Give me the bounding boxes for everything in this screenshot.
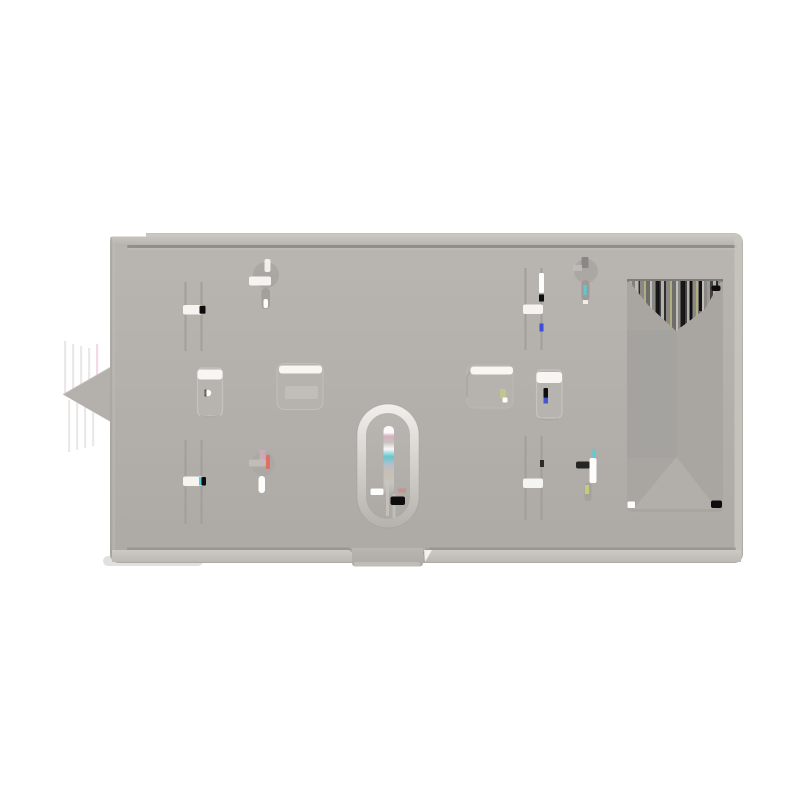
artifact-stripe (68, 400, 70, 452)
mounting-plate-photo (0, 0, 800, 800)
artifact-mark-cyan (199, 477, 201, 486)
bottom-center-tab-lip (354, 562, 420, 567)
artifact-mark-white (503, 398, 508, 403)
artifact-mark-white (371, 489, 384, 496)
artifact-mark-red (398, 489, 406, 493)
keyhole-notch-dark (582, 257, 589, 268)
plate-bottom-groove-left (127, 548, 349, 551)
plate-top-groove (127, 245, 737, 248)
recess-top-highlight (279, 366, 322, 374)
product-photo-canvas (0, 0, 800, 800)
chevron-bar (681, 281, 686, 327)
artifact-mark-blue (544, 398, 549, 404)
artifact-stripe (64, 341, 66, 393)
right-rect-cutout (627, 279, 723, 512)
plate-bottom-groove-right (429, 548, 736, 551)
artifact-mark-dark (205, 390, 207, 397)
chevron-bar (699, 281, 702, 311)
artifact-mark-black (576, 462, 590, 469)
plate-left-edge-highlight (112, 240, 115, 554)
plate-bottom-band-left (112, 550, 352, 562)
keyhole-cross-slot (249, 277, 271, 286)
recess-top-highlight (471, 367, 514, 375)
plate-top-edge-band (111, 234, 742, 247)
artifact-stripe (72, 344, 74, 390)
recess-right (467, 365, 513, 408)
square-boss-right (537, 370, 563, 420)
artifact-stripe (84, 404, 86, 448)
artifact-mark-pink (260, 450, 266, 461)
artifact-mark-dark (540, 460, 544, 467)
artifact-mark-white (628, 502, 636, 509)
recess-left (277, 364, 323, 410)
slot-opening (523, 305, 543, 315)
artifact-mark-black (391, 497, 406, 506)
artifact-mark-black (201, 477, 206, 486)
artifact-mark-black (544, 388, 549, 398)
artifact-mark-black (539, 295, 544, 302)
recess-inner-band (285, 386, 318, 399)
artifact-stripe (80, 346, 82, 388)
artifact-mark-black (712, 286, 721, 292)
artifact-mark-black (200, 306, 206, 314)
artifact-mark-white (583, 300, 588, 304)
top-left-step-notch (110, 233, 146, 237)
artifact-mark-white (590, 458, 597, 483)
artifact-mark-yellow (585, 485, 589, 494)
artifact-mark-blue (540, 324, 544, 332)
center-oval-ring (357, 404, 419, 528)
artifact-mark-yellow (500, 389, 506, 398)
keyhole-dash-light (573, 265, 582, 271)
square-boss-left (198, 368, 223, 417)
plate-left-edge-shade (110, 237, 112, 557)
plate-top-groove-highlight (127, 248, 737, 250)
plate-right-edge-highlight (735, 236, 743, 559)
artifact-mark-white (259, 476, 266, 493)
oval-thin-line (386, 480, 389, 516)
artifact-mark-white (264, 299, 269, 308)
mounting-plate (110, 233, 743, 567)
cutout-interior-dark-half (627, 330, 677, 458)
artifact-mark-white (539, 273, 544, 293)
boss-top-highlight (198, 370, 223, 380)
slot-opening (523, 479, 543, 489)
artifact-mark-black (711, 501, 722, 509)
artifact-mark-cyan (584, 285, 587, 295)
plate-bottom-band-right (426, 550, 741, 562)
chevron-bar (690, 281, 693, 321)
keyhole-notch-highlight (265, 259, 271, 272)
artifact-mark-red (266, 455, 270, 469)
artifact-stripe (76, 402, 78, 450)
boss-top-highlight (537, 372, 563, 383)
artifact-mark-cyan (593, 449, 596, 458)
